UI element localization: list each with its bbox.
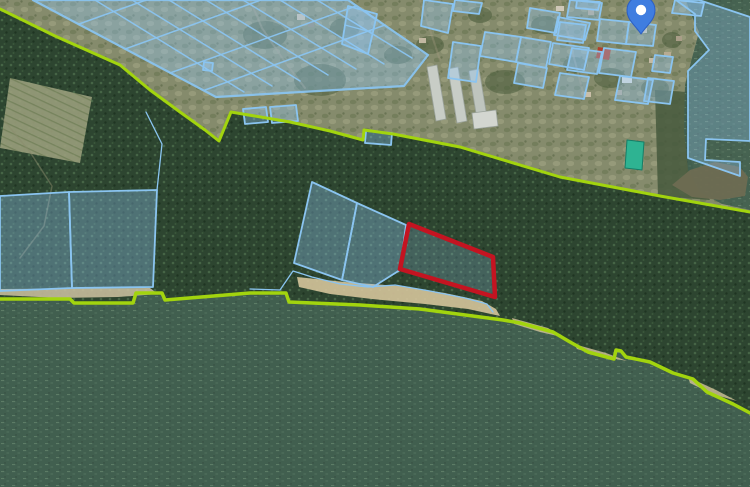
- house-roof: [556, 6, 564, 11]
- cadastral-parcel[interactable]: [652, 55, 673, 73]
- map-viewport: [0, 0, 750, 487]
- cadastral-parcel[interactable]: [597, 19, 629, 44]
- cadastral-parcel[interactable]: [421, 0, 453, 33]
- cadastral-parcel[interactable]: [480, 32, 521, 62]
- cadastral-parcel[interactable]: [599, 48, 636, 77]
- cadastral-parcel[interactable]: [644, 78, 674, 104]
- cadastral-parcel[interactable]: [514, 63, 547, 88]
- cadastral-parcel[interactable]: [448, 42, 481, 82]
- map-pin-dot[interactable]: [636, 5, 646, 15]
- greenhouse-roof: [472, 110, 498, 129]
- house-roof: [419, 38, 426, 43]
- cadastral-parcel[interactable]: [203, 62, 213, 71]
- house-roof: [676, 36, 682, 41]
- cadastral-parcel[interactable]: [555, 73, 589, 99]
- swimming-pool: [625, 140, 644, 170]
- cadastral-parcel[interactable]: [453, 0, 482, 14]
- cadastral-parcel[interactable]: [567, 0, 602, 20]
- cadastral-parcel[interactable]: [0, 192, 72, 291]
- pool-water: [625, 140, 644, 170]
- cadastral-parcel[interactable]: [557, 22, 586, 43]
- cadastral-parcel[interactable]: [567, 48, 602, 74]
- cadastral-parcel[interactable]: [69, 190, 157, 288]
- satellite-map-canvas[interactable]: [0, 0, 750, 487]
